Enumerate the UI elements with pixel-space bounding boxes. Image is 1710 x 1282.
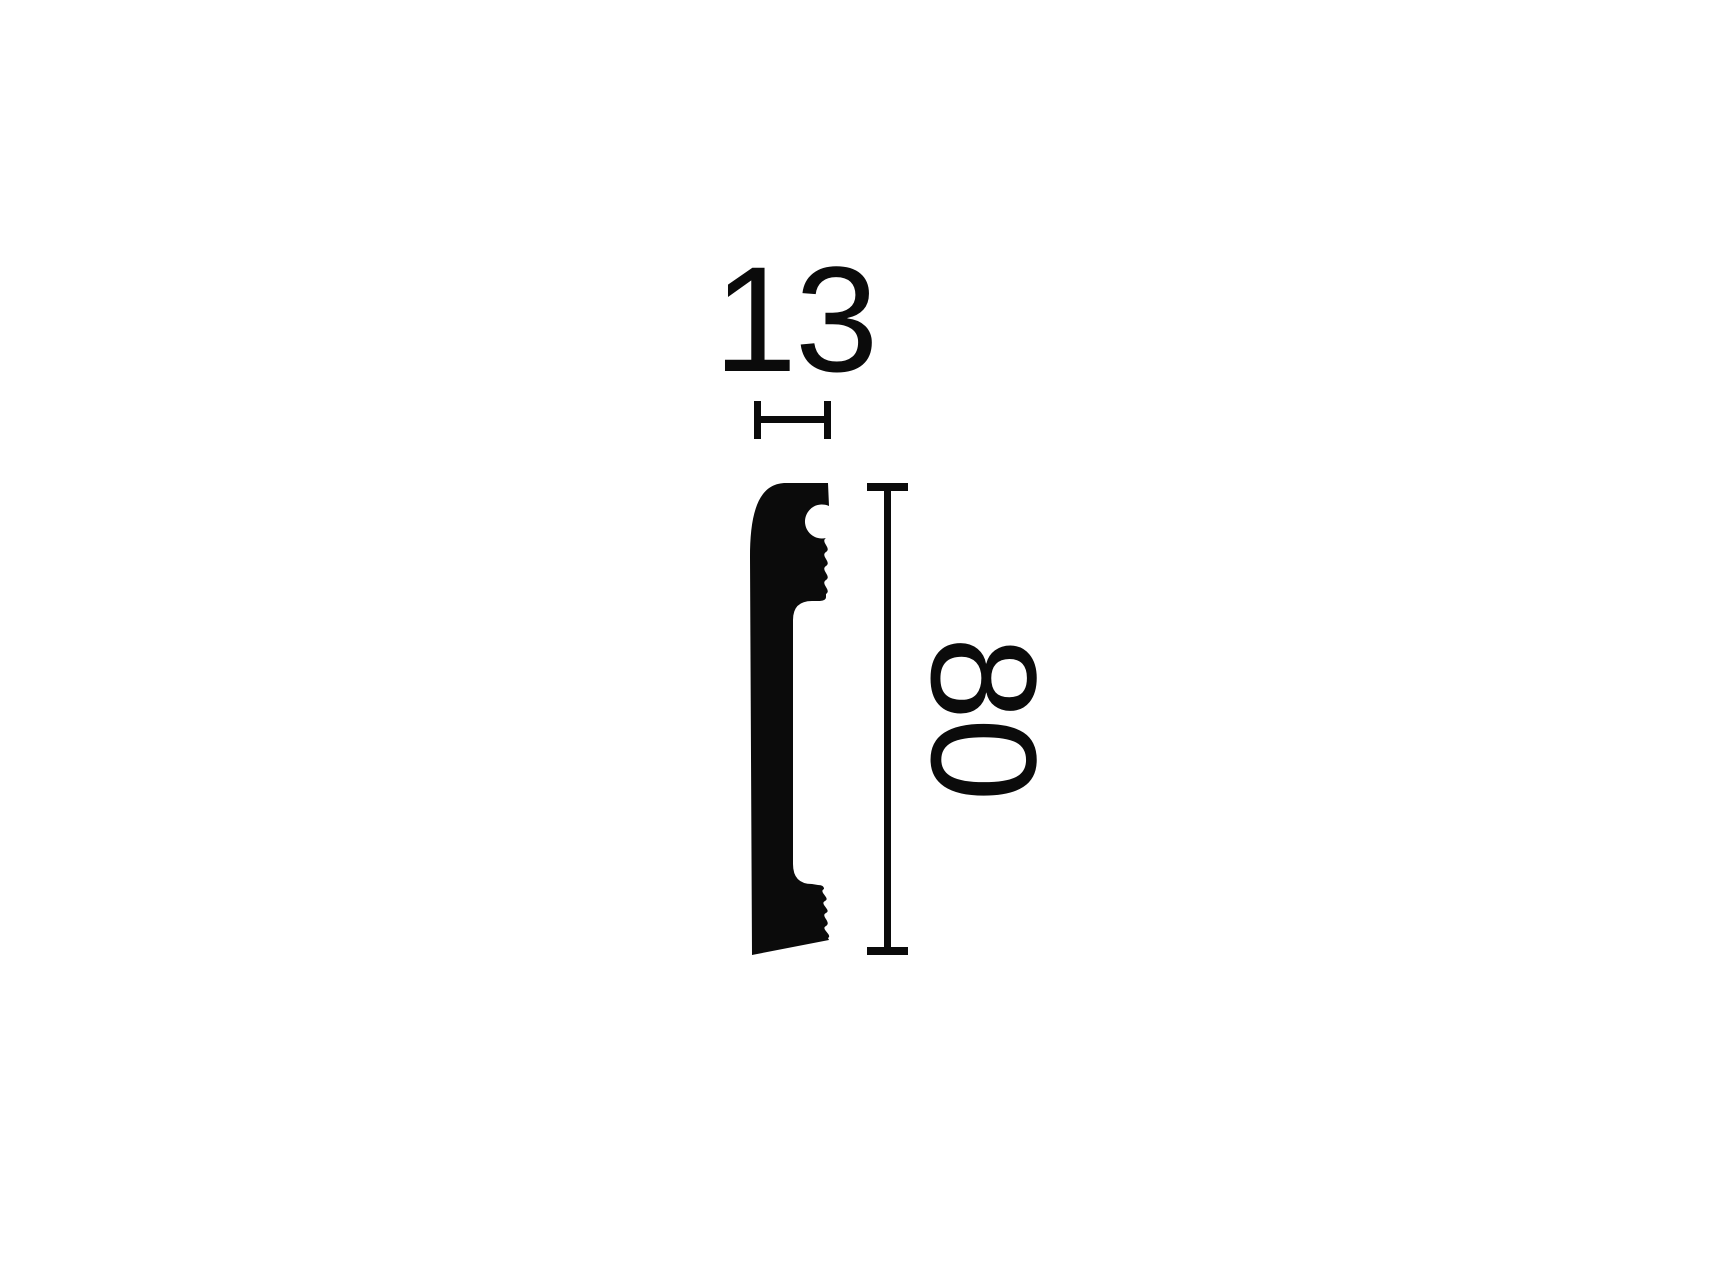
- skirting-profile-diagram: 13 80: [0, 0, 1710, 1282]
- width-dimension-label: 13: [714, 235, 877, 403]
- height-dim-bar: [884, 483, 891, 955]
- width-dim-bar: [754, 416, 831, 423]
- technical-drawing-canvas: 13 80: [0, 0, 1710, 1282]
- width-dimension-line: [754, 401, 831, 439]
- width-dim-right-tick: [824, 401, 831, 439]
- height-dimension-label: 80: [900, 637, 1068, 800]
- profile-cross-section-shape: [750, 483, 829, 955]
- height-dim-bottom-tick: [867, 947, 908, 955]
